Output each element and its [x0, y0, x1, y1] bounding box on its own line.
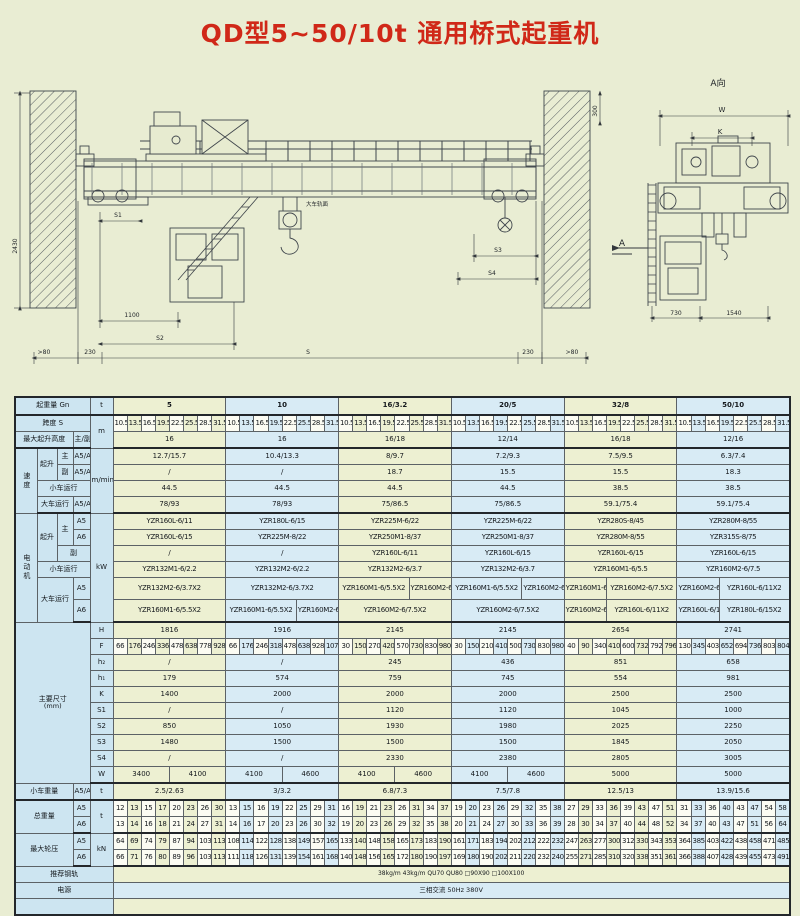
spec-cell: 28.5	[536, 415, 550, 432]
aux-pulley	[498, 197, 512, 232]
spec-cell: 176	[240, 639, 254, 655]
spec-cell: 66	[113, 850, 127, 867]
dim-symbol: S3	[90, 735, 113, 751]
spec-cell: 48	[649, 817, 663, 834]
spec-cell: 1000	[677, 703, 790, 719]
row-label: 最大轮压	[15, 833, 73, 866]
spec-cell: 3400	[113, 767, 169, 784]
spec-cell: 7.5/7.8	[451, 783, 564, 800]
spec-cell: 起升	[37, 513, 57, 562]
spec-cell: 33	[522, 817, 536, 834]
spec-cell: 638	[184, 639, 198, 655]
dim-230-left-label: 230	[84, 349, 96, 356]
spec-cell: YZR160M2-6/7.5X2	[564, 600, 606, 623]
spec-cell: 12/14	[451, 432, 564, 449]
left-wall	[30, 91, 76, 308]
spec-cell: 22.5	[508, 415, 522, 432]
table-row: h₂//245436851658	[15, 655, 790, 671]
spec-cell: 64	[776, 817, 790, 834]
spec-cell: 638	[296, 639, 310, 655]
spec-cell: 37	[606, 817, 620, 834]
spec-cell: 59.1/75.4	[564, 497, 677, 514]
spec-cell: 180	[409, 850, 423, 867]
spec-cell: 351	[649, 850, 663, 867]
spec-cell: 小车运行	[37, 481, 90, 497]
spec-cell: 340	[592, 639, 606, 655]
spec-cell: 16	[141, 817, 155, 834]
spec-cell: 5000	[564, 767, 677, 784]
spec-cell: 778	[198, 639, 212, 655]
spec-cell: 438	[733, 833, 747, 850]
spec-cell: YZR180L-6/15	[226, 513, 339, 530]
spec-cell: 554	[564, 671, 677, 687]
spec-cell: 22.5	[282, 415, 296, 432]
trolley	[146, 112, 266, 161]
spec-cell: 18	[155, 817, 169, 834]
spec-cell: 455	[747, 850, 761, 867]
spec-cell: 78/93	[113, 497, 226, 514]
spec-cell: YZR225M-6/22	[451, 513, 564, 530]
table-row: F661762463364786387789286617624631847863…	[15, 639, 790, 655]
spec-cell: 54	[762, 800, 776, 817]
spec-cell: YZR250M1-8/37	[451, 530, 564, 546]
spec-cell: 2050	[677, 735, 790, 751]
spec-cell: 190	[480, 850, 494, 867]
spec-cell: 246	[254, 639, 268, 655]
spec-cell: 40	[719, 800, 733, 817]
spec-cell: 212	[522, 833, 536, 850]
section-label: 电动机	[15, 513, 37, 622]
spec-cell: 6.8/7.3	[339, 783, 452, 800]
table-row: 小车运行44.544.544.544.538.538.5	[15, 481, 790, 497]
spec-cell: 16	[254, 800, 268, 817]
spec-cell: 803	[762, 639, 776, 655]
spec-cell: 113	[212, 850, 226, 867]
table-row: 最大轮压A5kN64697479879410311310811412212813…	[15, 833, 790, 850]
spec-cell: 320	[621, 850, 635, 867]
spec-cell: 71	[127, 850, 141, 867]
spec-cell: /	[113, 655, 226, 671]
table-row: 推荐钢轨38kg/m 43kg/m QU70 QU80 □90X90 □100X…	[15, 866, 790, 883]
spec-cell: 29	[310, 800, 324, 817]
spec-cell: 113	[212, 833, 226, 850]
spec-cell: 161	[451, 833, 465, 850]
table-row: h₁179574759745554981	[15, 671, 790, 687]
capacity-header-cell: 50/10	[677, 397, 790, 415]
spec-cell: 2380	[451, 751, 564, 767]
spec-cell: 131	[268, 850, 282, 867]
spec-cell: 171	[465, 833, 479, 850]
spec-cell: 13.5	[240, 415, 254, 432]
power-spec-cell: 三相交流 50Hz 380V	[113, 883, 790, 899]
spec-cell: 210	[480, 639, 494, 655]
spec-cell: 31.5	[437, 415, 451, 432]
spec-cell: 1045	[564, 703, 677, 719]
spec-cell: 13.5	[353, 415, 367, 432]
spec-cell: 6.3/7.4	[677, 448, 790, 465]
spec-cell: 47	[747, 800, 761, 817]
spec-cell: 52	[663, 817, 677, 834]
spec-cell: 851	[564, 655, 677, 671]
spec-cell: 361	[663, 850, 677, 867]
spec-cell: A5	[73, 578, 90, 600]
spec-cell: 25.5	[409, 415, 423, 432]
spec-cell: 1816	[113, 622, 226, 639]
spec-cell: 58	[776, 800, 790, 817]
spec-cell: A5/A6	[73, 497, 90, 514]
spec-cell: 36	[536, 817, 550, 834]
spec-cell: YZR315S-8/75	[677, 530, 790, 546]
spec-cell: 39	[550, 817, 564, 834]
spec-cell: 165	[324, 833, 338, 850]
spec-cell: 792	[649, 639, 663, 655]
spec-cell: 47	[733, 817, 747, 834]
spec-cell: 19.5	[155, 415, 169, 432]
spec-cell: 574	[226, 671, 339, 687]
spec-cell: 149	[296, 833, 310, 850]
spec-cell: 2250	[677, 719, 790, 735]
spec-cell: A6	[73, 817, 90, 834]
table-row: S285010501930198020252250	[15, 719, 790, 735]
spec-cell: 66	[113, 639, 127, 655]
table-row: 电源三相交流 50Hz 380V	[15, 883, 790, 899]
table-row: 跨度 Sm10.513.516.519.522.525.528.531.510.…	[15, 415, 790, 432]
spec-cell: 2500	[564, 687, 677, 703]
spec-cell: 44.5	[113, 481, 226, 497]
spec-cell: /	[113, 546, 226, 562]
spec-cell: YZR180L-6/15X2	[719, 600, 790, 623]
spec-cell: /	[226, 465, 339, 481]
spec-cell: YZR160L-6/11X2	[606, 600, 677, 623]
technical-drawings: S1 1100 S2 S3 S4 >80 230 S 230 >80 2430 …	[0, 66, 800, 394]
spec-cell: 247	[564, 833, 578, 850]
spec-cell: 18.7	[339, 465, 452, 481]
table-row: 主要尺寸(mm)H181619162145214526542741	[15, 622, 790, 639]
spec-cell: 30	[451, 639, 465, 655]
spec-cell: 副	[57, 546, 90, 562]
spec-cell: 89	[169, 850, 183, 867]
spec-cell: 25.5	[184, 415, 198, 432]
spec-cell: 338	[635, 850, 649, 867]
spec-cell: 2330	[339, 751, 452, 767]
spec-cell: 34	[677, 817, 691, 834]
spec-cell: 428	[719, 850, 733, 867]
spec-cell: 19	[451, 800, 465, 817]
spec-cell: 232	[550, 833, 564, 850]
table-row: W340041004100460041004600410046005000500…	[15, 767, 790, 784]
spec-cell: 1500	[339, 735, 452, 751]
spec-cell: 176	[127, 639, 141, 655]
spec-table: 起重量 Gnt51016/3.220/532/850/10跨度 Sm10.513…	[14, 396, 791, 916]
spec-cell: 15.5	[451, 465, 564, 481]
spec-cell: 122	[254, 833, 268, 850]
spec-cell: 27	[494, 817, 508, 834]
spec-cell: 103	[198, 833, 212, 850]
spec-cell: 108	[226, 833, 240, 850]
spec-cell: 312	[621, 833, 635, 850]
rail-spec-cell: 38kg/m 43kg/m QU70 QU80 □90X90 □100X100	[113, 866, 790, 883]
spec-cell: 16.5	[141, 415, 155, 432]
spec-cell: 1845	[564, 735, 677, 751]
unit-cell: t	[90, 397, 113, 415]
end-view	[648, 136, 788, 306]
spec-cell: 22.5	[621, 415, 635, 432]
dim-s2-label: S2	[156, 335, 164, 342]
spec-cell: 19.5	[268, 415, 282, 432]
spec-cell: 78/93	[226, 497, 339, 514]
spec-cell: 小车运行	[37, 562, 90, 578]
spec-cell: /	[226, 703, 339, 719]
spec-cell: 19	[353, 800, 367, 817]
table-row: 大车运行A5YZR132M2-6/3.7X2YZR132M2-6/3.7X2YZ…	[15, 578, 790, 600]
spec-cell: 28.5	[423, 415, 437, 432]
spec-cell: 5000	[677, 767, 790, 784]
spec-cell: 694	[733, 639, 747, 655]
spec-cell: A6	[73, 850, 90, 867]
spec-cell: 19.5	[719, 415, 733, 432]
spec-cell: A6	[73, 530, 90, 546]
spec-cell: YZR160M2-6/7.5X2	[522, 578, 564, 600]
spec-cell: 19	[268, 800, 282, 817]
spec-cell: 172	[395, 850, 409, 867]
dim-2430-label: 2430	[12, 238, 19, 253]
unit-cell: kW	[90, 513, 113, 622]
section-label: 速度	[15, 448, 37, 513]
spec-cell: 51	[663, 800, 677, 817]
page-title: QD型5~50/10t 通用桥式起重机	[0, 14, 800, 50]
spec-cell: A5	[73, 833, 90, 850]
spec-cell: 16.5	[254, 415, 268, 432]
table-row: 最大起升高度主/副161616/1812/1416/1812/16	[15, 432, 790, 449]
spec-cell: 20	[169, 800, 183, 817]
spec-cell: 732	[635, 639, 649, 655]
table-row: A613141618212427311416172023263032192023…	[15, 817, 790, 834]
spec-cell: YZR160M2-6/7.5X2	[296, 600, 338, 623]
spec-cell: YZR160L-6/11	[339, 546, 452, 562]
spec-cell: YZR280M-8/55	[677, 513, 790, 530]
spec-cell	[113, 899, 790, 916]
unit-cell: t	[90, 800, 113, 833]
row-label: 推荐钢轨	[15, 866, 113, 883]
spec-cell: 211	[508, 850, 522, 867]
spec-cell: 600	[621, 639, 635, 655]
spec-cell: 140	[353, 833, 367, 850]
spec-cell: 343	[649, 833, 663, 850]
spec-cell: 2805	[564, 751, 677, 767]
dim-300-label: 300	[592, 105, 599, 117]
spec-cell: A5/A6	[73, 448, 90, 465]
end-view-dimensions	[652, 110, 788, 322]
spec-cell: 35	[423, 817, 437, 834]
spec-cell: 658	[677, 655, 790, 671]
spec-cell: 336	[155, 639, 169, 655]
spec-cell: 1500	[451, 735, 564, 751]
spec-cell: 34	[592, 817, 606, 834]
spec-cell: 21	[367, 800, 381, 817]
spec-cell: 21	[465, 817, 479, 834]
spec-cell: 232	[536, 850, 550, 867]
spec-cell: 79	[155, 833, 169, 850]
spec-cell: 20	[353, 817, 367, 834]
spec-cell: 31.5	[776, 415, 790, 432]
spec-cell: 26	[381, 817, 395, 834]
spec-cell: A6	[73, 600, 90, 623]
spec-cell: YZR280S-8/45	[564, 513, 677, 530]
spec-cell: YZR132M2-6/2.2	[226, 562, 339, 578]
spec-cell: 1400	[113, 687, 226, 703]
spec-cell: 366	[677, 850, 691, 867]
spec-cell: 40	[705, 817, 719, 834]
spec-cell: 473	[762, 850, 776, 867]
spec-cell: 16/18	[339, 432, 452, 449]
spec-cell: 150	[465, 639, 479, 655]
spec-cell: 173	[409, 833, 423, 850]
spec-cell: 4600	[282, 767, 338, 784]
spec-cell: YZR132M2-6/3.7	[451, 562, 564, 578]
spec-cell: 25	[296, 800, 310, 817]
spec-cell: 277	[592, 833, 606, 850]
spec-cell: 16	[226, 432, 339, 449]
spec-cell: 64	[113, 833, 127, 850]
table-row: A666717680899610311311111812613113915416…	[15, 850, 790, 867]
spec-cell: 4100	[226, 767, 282, 784]
spec-cell: 28.5	[198, 415, 212, 432]
spec-cell: 8/9.7	[339, 448, 452, 465]
spec-cell: 12.7/15.7	[113, 448, 226, 465]
spec-cell: YZR132M2-6/3.7	[339, 562, 452, 578]
spec-cell: YZR225M-6/22	[339, 513, 452, 530]
table-row: 小车运行YZR132M1-6/2.2YZR132M2-6/2.2YZR132M2…	[15, 562, 790, 578]
spec-cell: 471	[762, 833, 776, 850]
spec-cell: 28.5	[762, 415, 776, 432]
spec-cell: 32	[324, 817, 338, 834]
capacity-header-cell: 32/8	[564, 397, 677, 415]
table-row: 总重量A5t1213151720232630131516192225293116…	[15, 800, 790, 817]
table-row: 大车运行A5/A678/9378/9375/86.575/86.559.1/75…	[15, 497, 790, 514]
spec-cell: YZR160M2-6/7.5	[677, 562, 790, 578]
spec-cell: 16.5	[705, 415, 719, 432]
dim-gt80-left-label: >80	[38, 349, 51, 356]
unit-cell: t	[90, 783, 113, 800]
spec-cell: 90	[578, 639, 592, 655]
capacity-header-cell: 5	[113, 397, 226, 415]
spec-cell: 804	[776, 639, 790, 655]
spec-cell: 202	[508, 833, 522, 850]
dim-w-label: W	[719, 106, 726, 114]
spec-cell: 796	[663, 639, 677, 655]
dim-symbol: S1	[90, 703, 113, 719]
spec-cell: 2145	[339, 622, 452, 639]
spec-cell: 74	[141, 833, 155, 850]
spec-cell: 478	[282, 639, 296, 655]
spec-cell: 43	[635, 800, 649, 817]
spec-cell: 161	[310, 850, 324, 867]
spec-cell: 23	[480, 800, 494, 817]
spec-cell: YZR160M2-6/7.5X2	[409, 578, 451, 600]
spec-cell: 24	[184, 817, 198, 834]
spec-cell: 180	[465, 850, 479, 867]
spec-cell: 19.5	[381, 415, 395, 432]
spec-cell: 491	[776, 850, 790, 867]
table-row: 起重量 Gnt51016/3.220/532/850/10	[15, 397, 790, 415]
table-row: A6YZR160M1-6/5.5X2YZR160M1-6/5.5X2YZR160…	[15, 600, 790, 623]
spec-cell: 96	[184, 850, 198, 867]
spec-cell: 2.5/2.63	[113, 783, 226, 800]
spec-cell: 30	[339, 639, 353, 655]
spec-cell: YZR160M2-6/7.5X2	[451, 600, 564, 623]
stairs	[178, 197, 258, 280]
spec-cell: 168	[324, 850, 338, 867]
elevation-view	[30, 91, 590, 308]
spec-cell: 26	[494, 800, 508, 817]
spec-cell: 138	[282, 833, 296, 850]
spec-cell: 13	[127, 800, 141, 817]
spec-cell: 39	[621, 800, 635, 817]
spec-cell: 13	[226, 800, 240, 817]
spec-cell: 222	[536, 833, 550, 850]
spec-cell: 20	[451, 817, 465, 834]
spec-cell: 29	[578, 800, 592, 817]
spec-cell: 830	[423, 639, 437, 655]
spec-cell: YZR160L-6/11	[113, 513, 226, 530]
spec-cell: 31	[324, 800, 338, 817]
spec-cell: 16	[113, 432, 226, 449]
spec-cell: 19.5	[606, 415, 620, 432]
spec-cell: 35	[536, 800, 550, 817]
row-label: 总重量	[15, 800, 73, 833]
spec-cell: 403	[705, 639, 719, 655]
spec-cell: 13.9/15.6	[677, 783, 790, 800]
unit-cell: m/min	[90, 448, 113, 513]
table-row: 速度起升主A5/A6m/min12.7/15.710.4/13.38/9.77.…	[15, 448, 790, 465]
spec-cell: 37	[437, 800, 451, 817]
spec-cell: 75/86.5	[339, 497, 452, 514]
spec-cell: 410	[494, 639, 508, 655]
spec-cell: 14	[127, 817, 141, 834]
spec-cell: YZR160L-6/15	[451, 546, 564, 562]
dim-symbol: S2	[90, 719, 113, 735]
spec-cell: 10.4/13.3	[226, 448, 339, 465]
spec-cell: 26	[198, 800, 212, 817]
spec-cell: 133	[339, 833, 353, 850]
spec-cell: 2000	[451, 687, 564, 703]
spec-cell: 285	[592, 850, 606, 867]
spec-cell: 17	[254, 817, 268, 834]
spec-cell: 76	[141, 850, 155, 867]
spec-cell: YZR160M1-6/5.5X2	[451, 578, 521, 600]
spec-cell: 32	[409, 817, 423, 834]
spec-cell: /	[226, 655, 339, 671]
spec-cell: 4600	[395, 767, 451, 784]
spec-cell: 17	[155, 800, 169, 817]
capacity-header-cell: 20/5	[451, 397, 564, 415]
spec-cell: 主	[57, 448, 73, 465]
dim-s4-label: S4	[488, 270, 496, 277]
spec-cell: 500	[508, 639, 522, 655]
spec-cell: 87	[169, 833, 183, 850]
spec-cell: /	[113, 751, 226, 767]
row-label: 跨度 S	[15, 415, 90, 432]
spec-cell: 主/副	[73, 432, 90, 449]
spec-cell: 80	[155, 850, 169, 867]
spec-cell: 16.5	[480, 415, 494, 432]
spec-cell: 103	[198, 850, 212, 867]
spec-cell: 37	[691, 817, 705, 834]
spec-cell: 36	[705, 800, 719, 817]
spec-cell: 12.5/13	[564, 783, 677, 800]
spec-cell: YZR160M2-6/7.5X2	[677, 578, 719, 600]
spec-cell: 1930	[339, 719, 452, 735]
